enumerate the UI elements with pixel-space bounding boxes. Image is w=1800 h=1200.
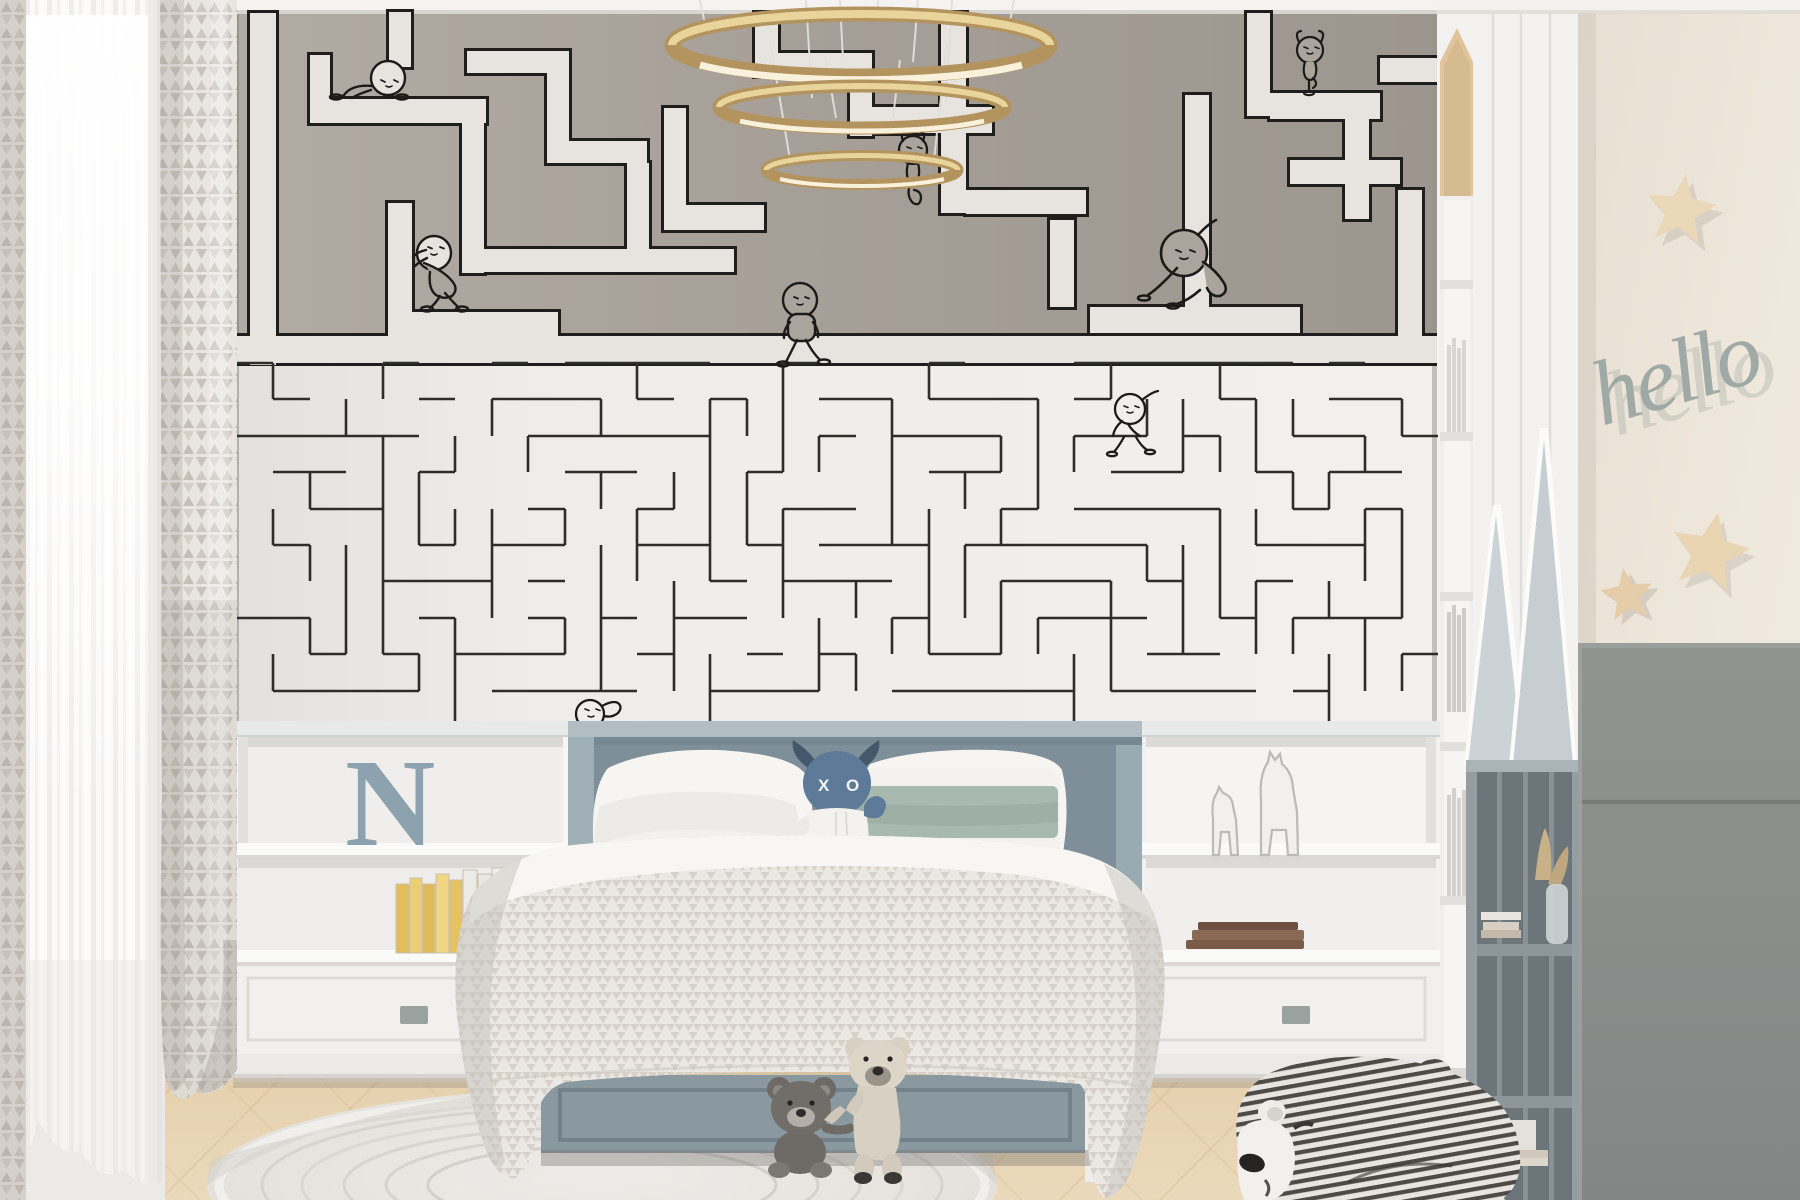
svg-text:X: X bbox=[818, 776, 830, 795]
svg-text:O: O bbox=[846, 776, 859, 795]
svg-text:N: N bbox=[345, 735, 435, 873]
